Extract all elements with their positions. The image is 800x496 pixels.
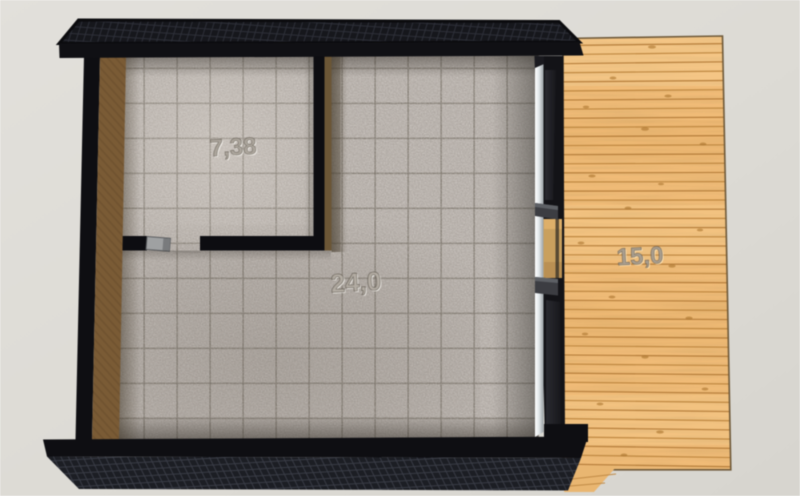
svg-text:7,38: 7,38: [209, 133, 257, 162]
svg-text:24,0: 24,0: [330, 266, 382, 299]
svg-text:15,0: 15,0: [616, 242, 664, 271]
